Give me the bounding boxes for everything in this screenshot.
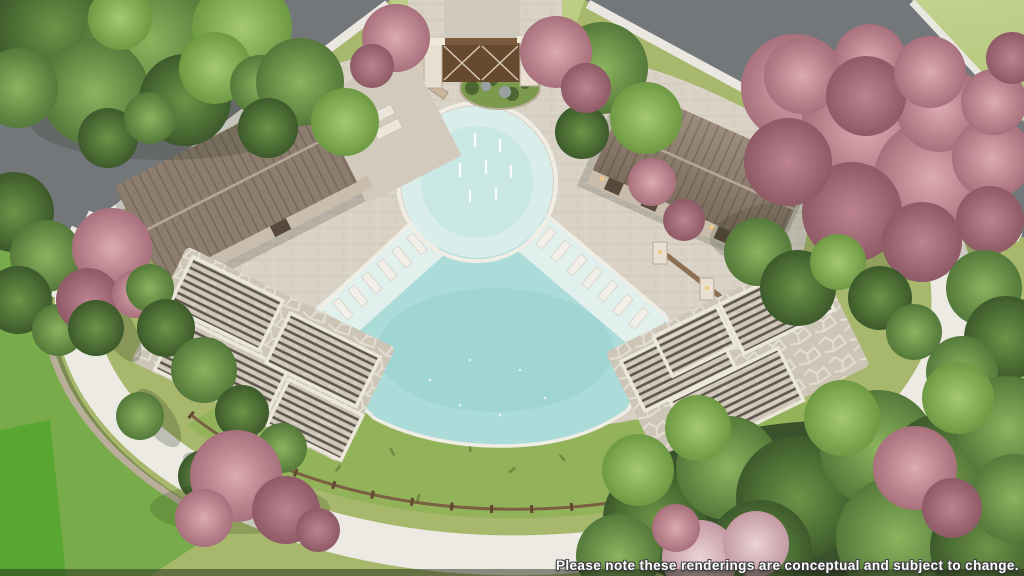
aerial-rendering-pool-amenity: Please note these renderings are concept… — [0, 0, 1024, 576]
gate-header-beam — [438, 38, 524, 45]
gate-door — [442, 44, 520, 82]
disclaimer-text: Please note these renderings are concept… — [0, 558, 1019, 573]
rendering-scene — [0, 0, 1024, 576]
pool-deep-tint — [377, 288, 613, 412]
